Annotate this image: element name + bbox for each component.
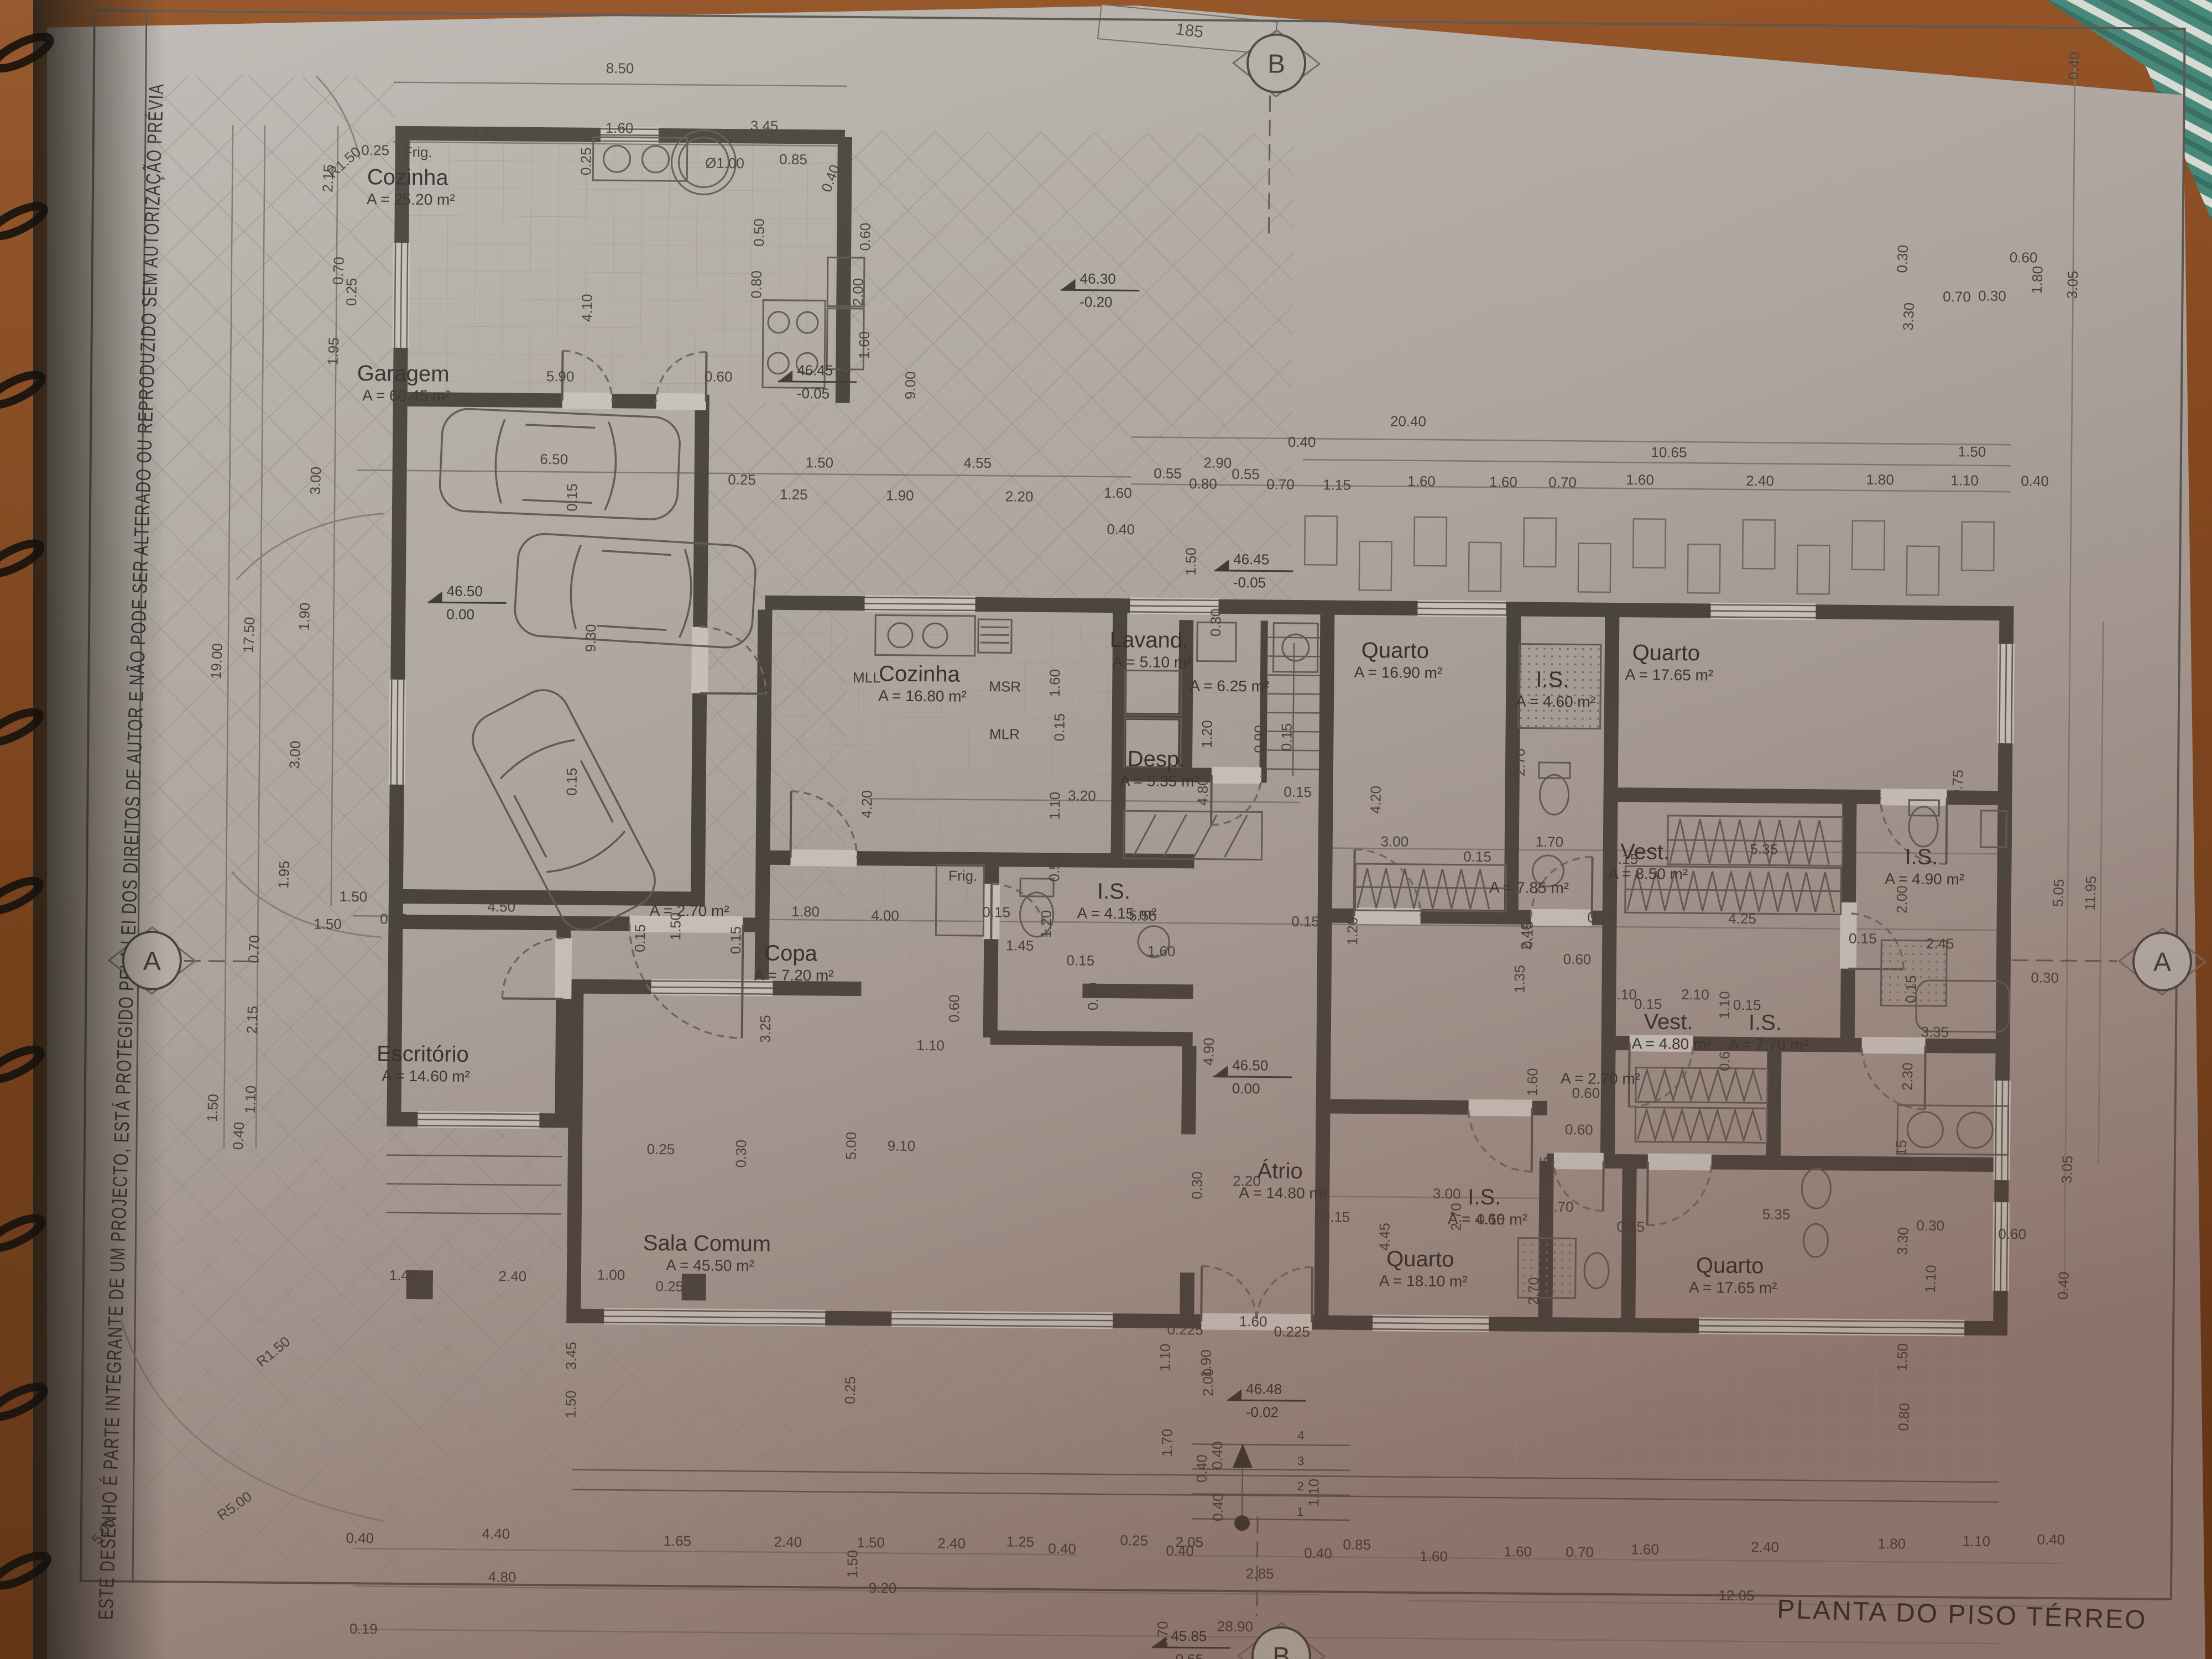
light-shading [0,0,2212,1659]
photo-of-floor-plan: 185 ESTE DESENHO É PARTE INTEGRANTE DE U… [0,0,2212,1659]
binding-shadow [33,0,166,1659]
